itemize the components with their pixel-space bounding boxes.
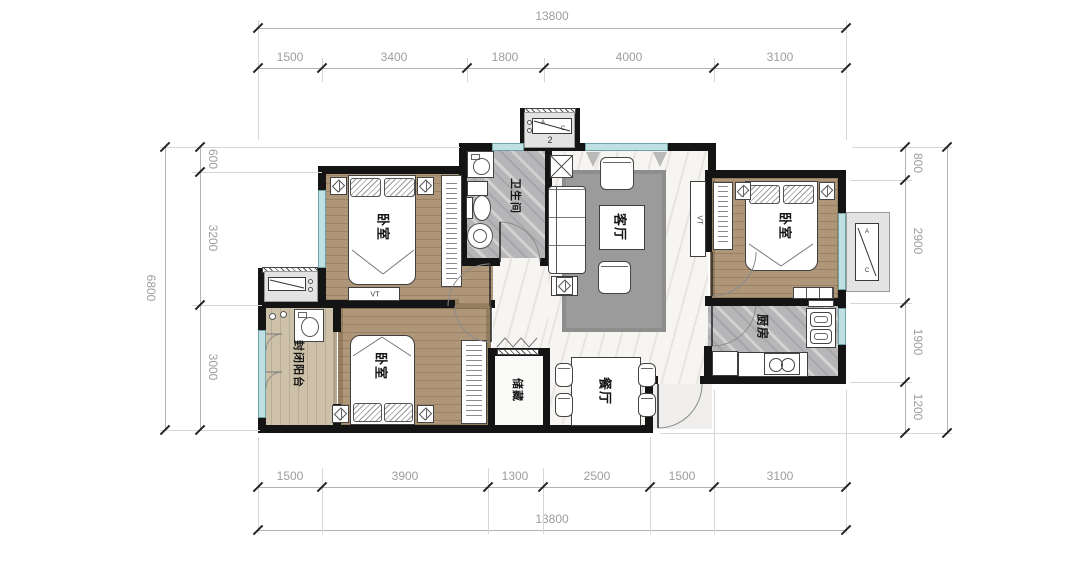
bay-number: 2 — [547, 135, 552, 145]
room-label-storage: 储藏 — [510, 378, 526, 402]
room-label-kitchen: 厨房 — [755, 314, 772, 340]
ac-label-a: A — [541, 120, 545, 126]
room-label-bedroom-tl: 卧室 — [375, 213, 394, 241]
ac-label-c: C — [865, 268, 869, 274]
label-layer: 卧室 卫生间 客厅 卧室 厨房 封闭阳台 卧室 储藏 餐厅 A C 2 A C — [0, 0, 1074, 576]
room-label-bathroom: 卫生间 — [508, 178, 524, 214]
ac-label-c: C — [561, 126, 565, 132]
room-label-balcony: 封闭阳台 — [291, 340, 307, 388]
room-label-living: 客厅 — [612, 213, 631, 241]
room-label-dining: 餐厅 — [597, 377, 616, 405]
room-label-bedroom-tr: 卧室 — [777, 212, 796, 240]
ac-label-a: A — [865, 229, 869, 235]
room-label-bedroom-bottom: 卧室 — [373, 352, 392, 380]
floor-plan-canvas: 13800 1500 3400 1800 4000 3100 1500 3900… — [0, 0, 1074, 576]
